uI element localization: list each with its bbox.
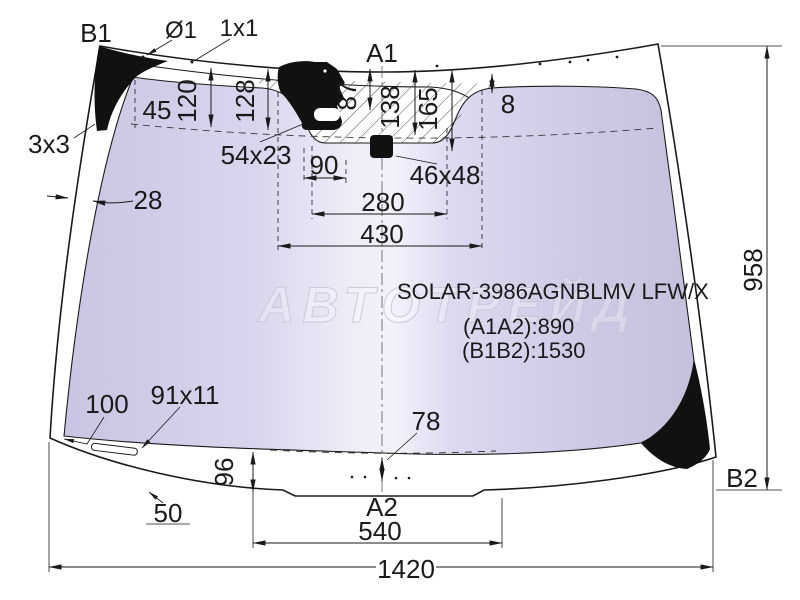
dim-540-label: 540 [358,516,401,546]
dim-50-label: 50 [154,498,183,528]
dim-87-label: 87 [332,82,362,111]
dim-100-label: 100 [85,389,128,419]
dim-90-label: 90 [310,150,339,180]
dim-138-label: 138 [375,85,405,128]
part-code-text: SOLAR-3986AGNBLMV LFW/X [397,279,709,304]
dim-120-label: 120 [172,79,202,122]
dim-45-label: 45 [143,95,172,125]
windshield-diagram: АВТОТРЕЙД SOLAR-3986AGNBLMV LFW/X (A1A2)… [0,0,800,600]
dim-280-label: 280 [361,187,404,217]
dim-165-label: 165 [413,87,443,130]
ref-b1-label: B1 [80,18,112,48]
tick-1x1-label: 1x1 [220,15,259,42]
dim-1420-label: 1420 [377,554,435,584]
edge-3x3-label: 3x3 [28,129,70,159]
part-a1a2-text: (A1A2):890 [463,314,574,339]
dim-96-label: 96 [209,458,239,487]
dim-8-label: 8 [501,89,515,119]
dim-430-label: 430 [360,219,403,249]
slot-54x23-label: 54x23 [221,140,292,170]
dim-958-label: 958 [738,248,768,291]
sensor-46x48-label: 46x48 [410,160,481,190]
ref-a1-label: A1 [366,38,398,68]
dim-78-label: 78 [412,406,441,436]
windshield-diagram-page: АВТОТРЕЙД SOLAR-3986AGNBLMV LFW/X (A1A2)… [0,0,800,600]
rain-sensor [370,135,393,158]
dim-128-label: 128 [230,79,260,122]
ref-b2-label: B2 [726,463,758,493]
dim-28-outer-arrow [47,196,68,198]
dim-28-label: 28 [134,185,163,215]
part-b1b2-text: (B1B2):1530 [462,338,586,363]
bracket-hole-dot [323,69,326,72]
tick-leader [194,39,230,61]
hole-dia-label: Ø1 [165,17,197,44]
strip-91x11-label: 91x11 [151,380,220,410]
